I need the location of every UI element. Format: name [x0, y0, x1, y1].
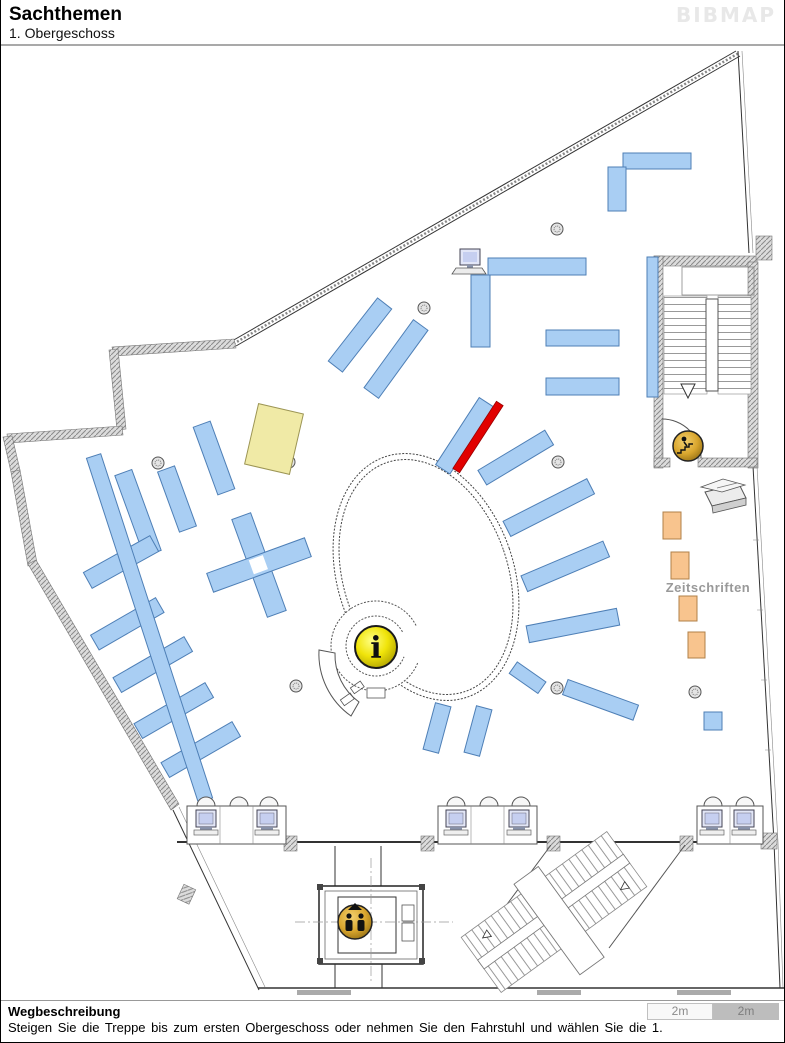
photocopier-icon	[701, 479, 746, 513]
bookshelf	[563, 679, 639, 720]
bookshelf	[704, 712, 722, 730]
magazine-shelf	[688, 632, 705, 658]
magazine-shelf	[671, 552, 689, 579]
page-title: Sachthemen	[9, 4, 122, 26]
column	[290, 680, 302, 692]
column	[152, 457, 164, 469]
directions-heading: Wegbeschreibung	[8, 1004, 120, 1019]
bookshelf	[521, 541, 610, 591]
chair	[260, 797, 278, 806]
bookshelf	[488, 258, 586, 275]
computer-icon	[255, 810, 279, 835]
info-glyph: i	[370, 631, 381, 666]
column	[551, 682, 563, 694]
map-scale-bar: 2m 2m	[647, 1003, 779, 1018]
floor-plan-map: i	[1, 0, 785, 1043]
chair	[704, 797, 722, 806]
opac-computer-icon	[452, 249, 486, 274]
workstation-group-left	[187, 797, 286, 844]
column	[689, 686, 701, 698]
header: Sachthemen 1. Obergeschoss BIBMAP	[1, 0, 784, 46]
chair	[230, 797, 248, 806]
computer-icon	[194, 810, 218, 835]
bookshelf	[647, 257, 658, 397]
computer-icon	[732, 810, 756, 835]
zeitschriften-area: Zeitschriften	[663, 512, 750, 658]
workstation-group-right	[697, 797, 763, 844]
column	[552, 456, 564, 468]
staircase-upper-right	[654, 236, 772, 468]
bookshelf	[509, 662, 546, 694]
computer-icon	[444, 810, 468, 835]
bookshelf	[503, 479, 594, 537]
bookshelf	[328, 298, 391, 372]
info-desk: i	[319, 601, 441, 716]
bookshelf	[546, 330, 619, 346]
zeitschriften-label: Zeitschriften	[666, 580, 751, 595]
computer-icon	[507, 810, 531, 835]
bookshelf	[193, 421, 235, 495]
header-divider	[1, 44, 784, 46]
bookshelf	[526, 608, 620, 642]
magazine-shelf	[663, 512, 681, 539]
bookshelf	[623, 153, 691, 169]
bookshelf	[471, 275, 490, 347]
bibmap-page: i	[0, 0, 785, 1043]
column	[418, 302, 430, 314]
bookshelf	[608, 167, 626, 211]
magazine-shelf	[679, 596, 697, 621]
workstation-group-middle	[438, 797, 537, 844]
column	[551, 223, 563, 235]
chair	[480, 797, 498, 806]
scale-segment-dark: 2m	[713, 1003, 779, 1020]
chair	[736, 797, 754, 806]
info-icon: i	[355, 626, 397, 668]
floor-label: 1. Obergeschoss	[9, 25, 115, 41]
scale-segment-light: 2m	[647, 1003, 713, 1020]
footer: Wegbeschreibung Steigen Sie die Treppe b…	[1, 1000, 784, 1042]
directions-text: Steigen Sie die Treppe bis zum ersten Ob…	[8, 1020, 663, 1035]
bibmap-logo: BIBMAP	[676, 3, 776, 27]
elevator	[295, 846, 453, 988]
bookshelf	[546, 378, 619, 395]
bookshelf	[464, 706, 492, 757]
computer-icon	[700, 810, 724, 835]
staircase-bottom	[454, 822, 685, 1018]
stairs-person-icon	[673, 431, 703, 461]
bookshelf	[158, 466, 197, 532]
chair	[447, 797, 465, 806]
chair	[512, 797, 530, 806]
bookshelf	[423, 703, 451, 754]
bookshelf	[478, 430, 554, 485]
